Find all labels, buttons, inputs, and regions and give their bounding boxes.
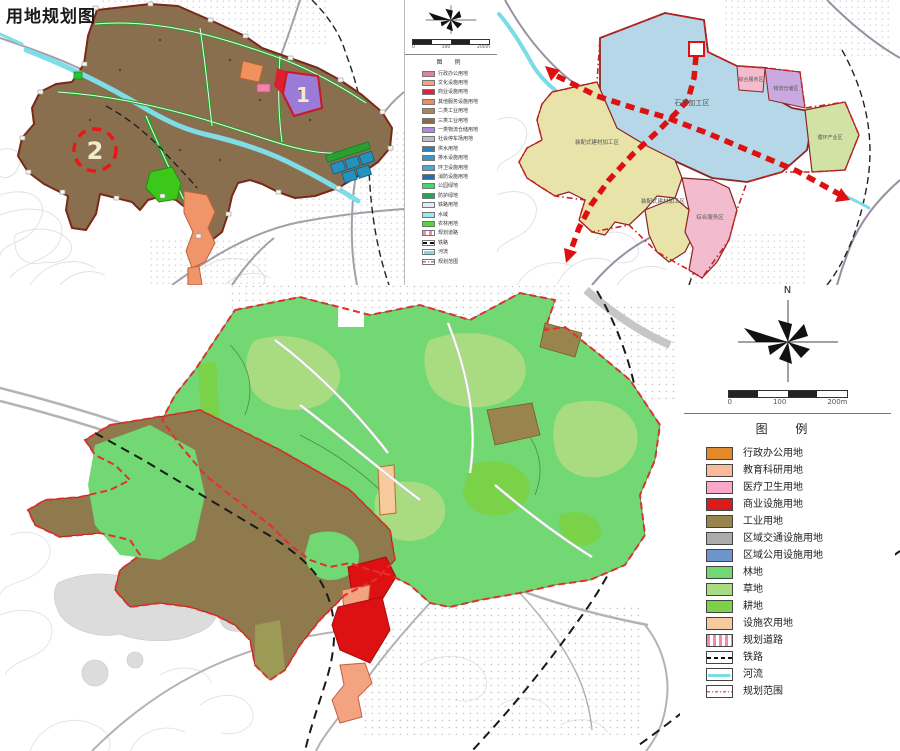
legend-item: 铁路用地 bbox=[405, 200, 497, 209]
legend-swatch bbox=[706, 583, 733, 596]
legend-item: 区域公用设施用地 bbox=[706, 549, 895, 562]
legend-label: 其他服务设施用地 bbox=[438, 99, 478, 105]
map-top-left: 2 1 bbox=[0, 0, 404, 285]
legend-item: 河流 bbox=[405, 247, 497, 256]
zone-label: 循环产业区 bbox=[817, 134, 842, 141]
legend-item: 耕地 bbox=[706, 600, 895, 613]
legend-swatch bbox=[706, 566, 733, 579]
legend-item: 区域交通设施用地 bbox=[706, 532, 895, 545]
scale-label: 100 bbox=[773, 398, 786, 407]
legend-label: 防护绿地 bbox=[438, 193, 458, 199]
scale-bar: 0 100 200m bbox=[412, 39, 490, 50]
legend-swatch bbox=[706, 617, 733, 630]
legend-item: 规划范围 bbox=[706, 685, 895, 698]
legend-label: 商业设施用地 bbox=[743, 499, 803, 511]
legend-swatch-river bbox=[706, 668, 733, 681]
legend-label: 社会停车场用地 bbox=[438, 136, 473, 142]
zone-label: 综合服务区 bbox=[696, 213, 724, 221]
legend-label: 行政办公用地 bbox=[743, 448, 803, 460]
scale-label: 0 bbox=[728, 398, 732, 407]
legend-swatch bbox=[706, 498, 733, 511]
page-title: 用地规划图 bbox=[6, 2, 96, 27]
legend-item: 文化设施用地 bbox=[405, 78, 497, 87]
legend-label: 河流 bbox=[743, 669, 763, 681]
legend-label: 文化设施用地 bbox=[438, 80, 468, 86]
legend-label: 排水设施用地 bbox=[438, 155, 468, 161]
legend-item: 铁路 bbox=[706, 651, 895, 664]
legend-label: 三类工业用地 bbox=[438, 118, 468, 124]
legend-item: 环卫设施用地 bbox=[405, 163, 497, 172]
legend-label: 耕地 bbox=[743, 601, 763, 613]
legend-item: 教育科研用地 bbox=[706, 464, 895, 477]
legend-item: 农林用地 bbox=[405, 219, 497, 228]
legend-swatch bbox=[422, 118, 435, 124]
legend-item: 社会停车场用地 bbox=[405, 135, 497, 144]
legend-swatch bbox=[706, 549, 733, 562]
legend-label: 林地 bbox=[743, 567, 763, 579]
legend-item: 医疗卫生用地 bbox=[706, 481, 895, 494]
legend-panel-top: 0 100 200m 图 例 行政办公用地 文化设施用地 商业设施用地 其他服务… bbox=[404, 0, 497, 285]
legend-heading: 图 例 bbox=[405, 57, 497, 66]
map-top-right-panel: 石材加工区 装配式建材加工区 装配式建材加工区 综合服务区 物流仓储区 循环产业… bbox=[497, 0, 900, 285]
scale-label: 200m bbox=[827, 398, 847, 407]
legend-label: 区域交通设施用地 bbox=[743, 533, 823, 545]
compass-rose-icon bbox=[423, 3, 479, 37]
marker-1-label: 1 bbox=[296, 83, 310, 107]
legend-swatch bbox=[422, 165, 435, 171]
legend-swatch-river bbox=[422, 249, 435, 255]
legend-item: 规划道路 bbox=[706, 634, 895, 647]
scale-bar: 0 100 200m bbox=[728, 390, 848, 407]
legend-swatch bbox=[422, 174, 435, 180]
legend-swatch bbox=[422, 193, 435, 199]
zone-label: 装配式建材加工区 bbox=[575, 138, 620, 146]
corridor-flag-node bbox=[689, 42, 704, 56]
legend-swatch bbox=[422, 155, 435, 161]
legend-label: 农林用地 bbox=[438, 221, 458, 227]
marker-2-label: 2 bbox=[87, 137, 104, 165]
legend-item: 工业用地 bbox=[706, 515, 895, 528]
legend-swatch bbox=[422, 99, 435, 105]
boundary-notch bbox=[338, 307, 364, 327]
legend-label: 二类工业用地 bbox=[438, 108, 468, 114]
legend-swatch bbox=[706, 515, 733, 528]
legend-swatch-range bbox=[706, 685, 733, 698]
legend-swatch-road bbox=[706, 634, 733, 647]
legend-heading: 图 例 bbox=[680, 420, 895, 437]
legend-item: 公园绿地 bbox=[405, 182, 497, 191]
scale-label: 200m bbox=[477, 45, 490, 50]
legend-label: 工业用地 bbox=[743, 516, 783, 528]
small-green-parcel bbox=[74, 72, 82, 79]
legend-swatch bbox=[422, 183, 435, 189]
legend-item: 铁路 bbox=[405, 238, 497, 247]
legend-swatch bbox=[422, 221, 435, 227]
legend-swatch-rail bbox=[422, 240, 435, 246]
legend-swatch-road bbox=[422, 230, 435, 236]
legend-label: 草地 bbox=[743, 584, 763, 596]
legend-item: 消防设施用地 bbox=[405, 172, 497, 181]
legend-item: 水域 bbox=[405, 210, 497, 219]
legend-swatch bbox=[706, 464, 733, 477]
legend-swatch bbox=[706, 532, 733, 545]
legend-label: 河流 bbox=[438, 249, 448, 255]
land-use-plan-sheet: 2 1 用地规划图 0 100 200m bbox=[0, 0, 900, 751]
legend-item: 河流 bbox=[706, 668, 895, 681]
legend-item: 供水用地 bbox=[405, 144, 497, 153]
legend-label: 供水用地 bbox=[438, 146, 458, 152]
legend-swatch bbox=[706, 600, 733, 613]
legend-label: 规划范围 bbox=[438, 259, 458, 265]
legend-label: 规划道路 bbox=[438, 230, 458, 236]
legend-item: 一类物流仓储用地 bbox=[405, 125, 497, 134]
legend-item: 商业设施用地 bbox=[706, 498, 895, 511]
legend-swatch bbox=[706, 481, 733, 494]
legend-label: 规划范围 bbox=[743, 686, 783, 698]
compass-north-label: N bbox=[680, 285, 895, 296]
scale-label: 100 bbox=[442, 45, 451, 50]
legend-label: 一类物流仓储用地 bbox=[438, 127, 478, 133]
legend-item: 行政办公用地 bbox=[706, 447, 895, 460]
legend-swatch bbox=[422, 89, 435, 95]
legend-item: 二类工业用地 bbox=[405, 107, 497, 116]
legend-label: 设施农用地 bbox=[743, 618, 793, 630]
legend-swatch bbox=[422, 146, 435, 152]
legend-label: 区域公用设施用地 bbox=[743, 550, 823, 562]
legend-item: 其他服务设施用地 bbox=[405, 97, 497, 106]
scale-label: 0 bbox=[412, 45, 415, 50]
legend-label: 环卫设施用地 bbox=[438, 165, 468, 171]
legend-item: 三类工业用地 bbox=[405, 116, 497, 125]
legend-label: 教育科研用地 bbox=[743, 465, 803, 477]
legend-label: 铁路用地 bbox=[438, 202, 458, 208]
legend-panel-bottom: N 0 100 200m 图 例 行政办公用地 教育科研用地 医 bbox=[680, 285, 895, 751]
compass-rose-icon bbox=[733, 298, 843, 386]
map-top-right: 石材加工区 装配式建材加工区 装配式建材加工区 综合服务区 物流仓储区 循环产业… bbox=[497, 0, 900, 285]
legend-item: 防护绿地 bbox=[405, 191, 497, 200]
legend-label: 医疗卫生用地 bbox=[743, 482, 803, 494]
legend-swatch bbox=[422, 80, 435, 86]
legend-item: 行政办公用地 bbox=[405, 69, 497, 78]
legend-swatch bbox=[422, 136, 435, 142]
legend-item: 排水设施用地 bbox=[405, 154, 497, 163]
legend-swatch-rail bbox=[706, 651, 733, 664]
divider bbox=[405, 54, 497, 55]
legend-item: 设施农用地 bbox=[706, 617, 895, 630]
legend-label: 消防设施用地 bbox=[438, 174, 468, 180]
legend-item: 商业设施用地 bbox=[405, 88, 497, 97]
legend-item: 规划道路 bbox=[405, 229, 497, 238]
legend-label: 铁路 bbox=[438, 240, 448, 246]
legend-label: 公园绿地 bbox=[438, 183, 458, 189]
zone-label: 综合服务区 bbox=[738, 76, 763, 83]
legend-swatch bbox=[422, 127, 435, 133]
legend-label: 水域 bbox=[438, 212, 448, 218]
zone-label: 物流仓储区 bbox=[773, 85, 798, 92]
legend-item: 林地 bbox=[706, 566, 895, 579]
legend-item: 规划范围 bbox=[405, 257, 497, 266]
legend-swatch bbox=[706, 447, 733, 460]
legend-swatch bbox=[422, 108, 435, 114]
legend-swatch bbox=[422, 202, 435, 208]
zone-label: 装配式建材加工区 bbox=[641, 197, 686, 205]
zone-label: 石材加工区 bbox=[675, 98, 710, 107]
legend-label: 规划道路 bbox=[743, 635, 783, 647]
legend-item: 草地 bbox=[706, 583, 895, 596]
legend-label: 商业设施用地 bbox=[438, 89, 468, 95]
divider bbox=[684, 413, 891, 414]
legend-label: 铁路 bbox=[743, 652, 763, 664]
legend-swatch bbox=[422, 71, 435, 77]
legend-swatch bbox=[422, 212, 435, 218]
map-top-left-panel: 2 1 用地规划图 bbox=[0, 0, 404, 285]
salmon-parcel-lower bbox=[188, 266, 202, 285]
legend-swatch-range bbox=[422, 259, 435, 265]
legend-label: 行政办公用地 bbox=[438, 71, 468, 77]
pink-parcel bbox=[257, 84, 270, 92]
